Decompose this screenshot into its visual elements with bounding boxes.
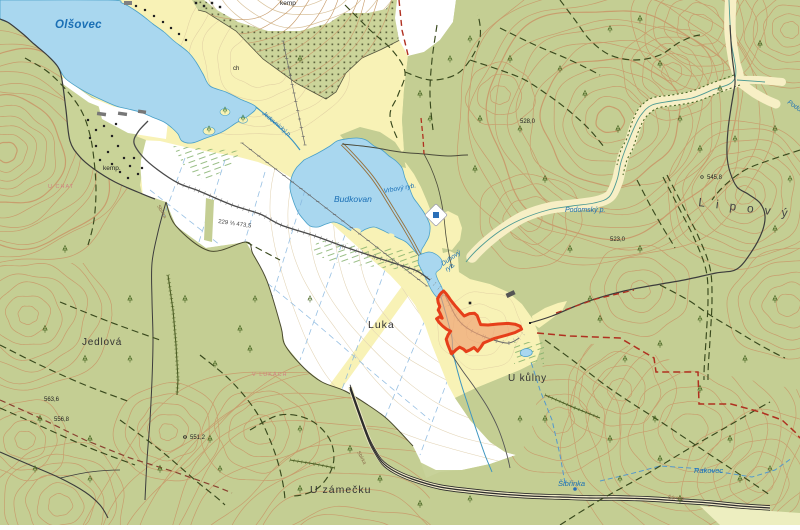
svg-text:Luka: Luka (368, 319, 395, 331)
svg-text:U kůlny: U kůlny (508, 372, 547, 384)
svg-text:556,8: 556,8 (54, 417, 70, 423)
svg-text:545,8: 545,8 (707, 175, 723, 181)
svg-text:V LUKÁCH: V LUKÁCH (252, 371, 288, 378)
svg-text:551,2: 551,2 (190, 435, 206, 441)
svg-text:Budkovan: Budkovan (334, 194, 372, 204)
svg-text:Šárnka: Šárnka (668, 494, 684, 502)
svg-text:U zámečku: U zámečku (310, 484, 372, 496)
svg-text:Podomský p.: Podomský p. (565, 207, 606, 214)
svg-text:U CHAT: U CHAT (48, 184, 74, 190)
svg-text:Olšovec: Olšovec (55, 19, 102, 31)
svg-text:563,6: 563,6 (44, 397, 60, 403)
svg-text:Jedlová: Jedlová (82, 337, 122, 348)
svg-text:528,0: 528,0 (520, 119, 536, 125)
svg-text:523,0: 523,0 (610, 237, 626, 243)
svg-text:ch: ch (233, 66, 239, 72)
svg-text:Šibřinka: Šibřinka (558, 479, 585, 488)
svg-text:Rakovec: Rakovec (694, 466, 723, 475)
svg-text:kemp: kemp (280, 0, 296, 7)
svg-text:kemp.: kemp. (103, 165, 121, 172)
